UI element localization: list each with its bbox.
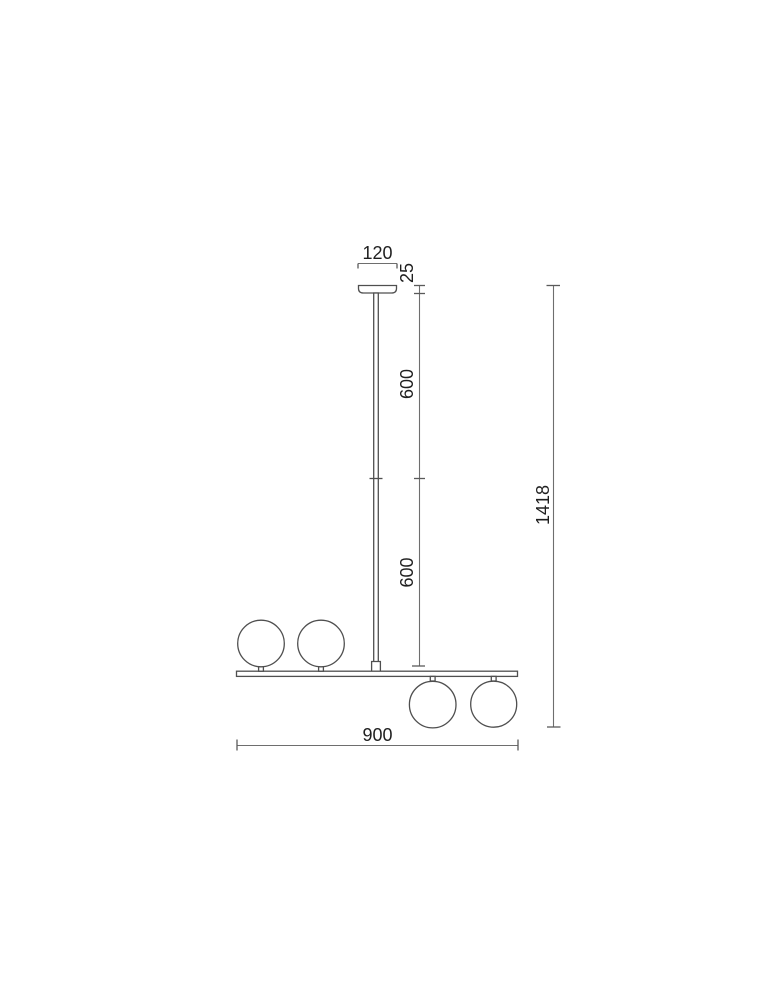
- dim-label-120: 120: [362, 243, 392, 263]
- glass-globe-2: [298, 620, 345, 667]
- dimension-vertical-chain: 25 600 600: [397, 263, 425, 666]
- glass-globe-4: [471, 681, 517, 727]
- glass-globe-3: [409, 681, 456, 728]
- ceiling-canopy: [359, 286, 397, 294]
- drawing-canvas: 120 25 600 600 1418 900: [0, 0, 774, 1000]
- dim-label-1418: 1418: [533, 485, 553, 525]
- pendant-lamp-dimension-diagram: 120 25 600 600 1418 900: [0, 0, 774, 1000]
- globe-stem-3: [430, 676, 435, 681]
- horizontal-bar: [237, 671, 518, 676]
- dim-label-900: 900: [362, 725, 392, 745]
- dimension-total-height: 1418: [533, 286, 561, 728]
- dimension-canopy-width: 120: [358, 243, 397, 269]
- glass-globe-1: [238, 620, 285, 667]
- dimension-bar-length: 900: [237, 725, 518, 751]
- dim-label-600-lower: 600: [397, 557, 417, 587]
- lamp-fixture: [237, 286, 518, 728]
- dim-label-25: 25: [397, 263, 417, 283]
- globe-stem-4: [491, 676, 496, 681]
- dim-label-600-upper: 600: [397, 369, 417, 399]
